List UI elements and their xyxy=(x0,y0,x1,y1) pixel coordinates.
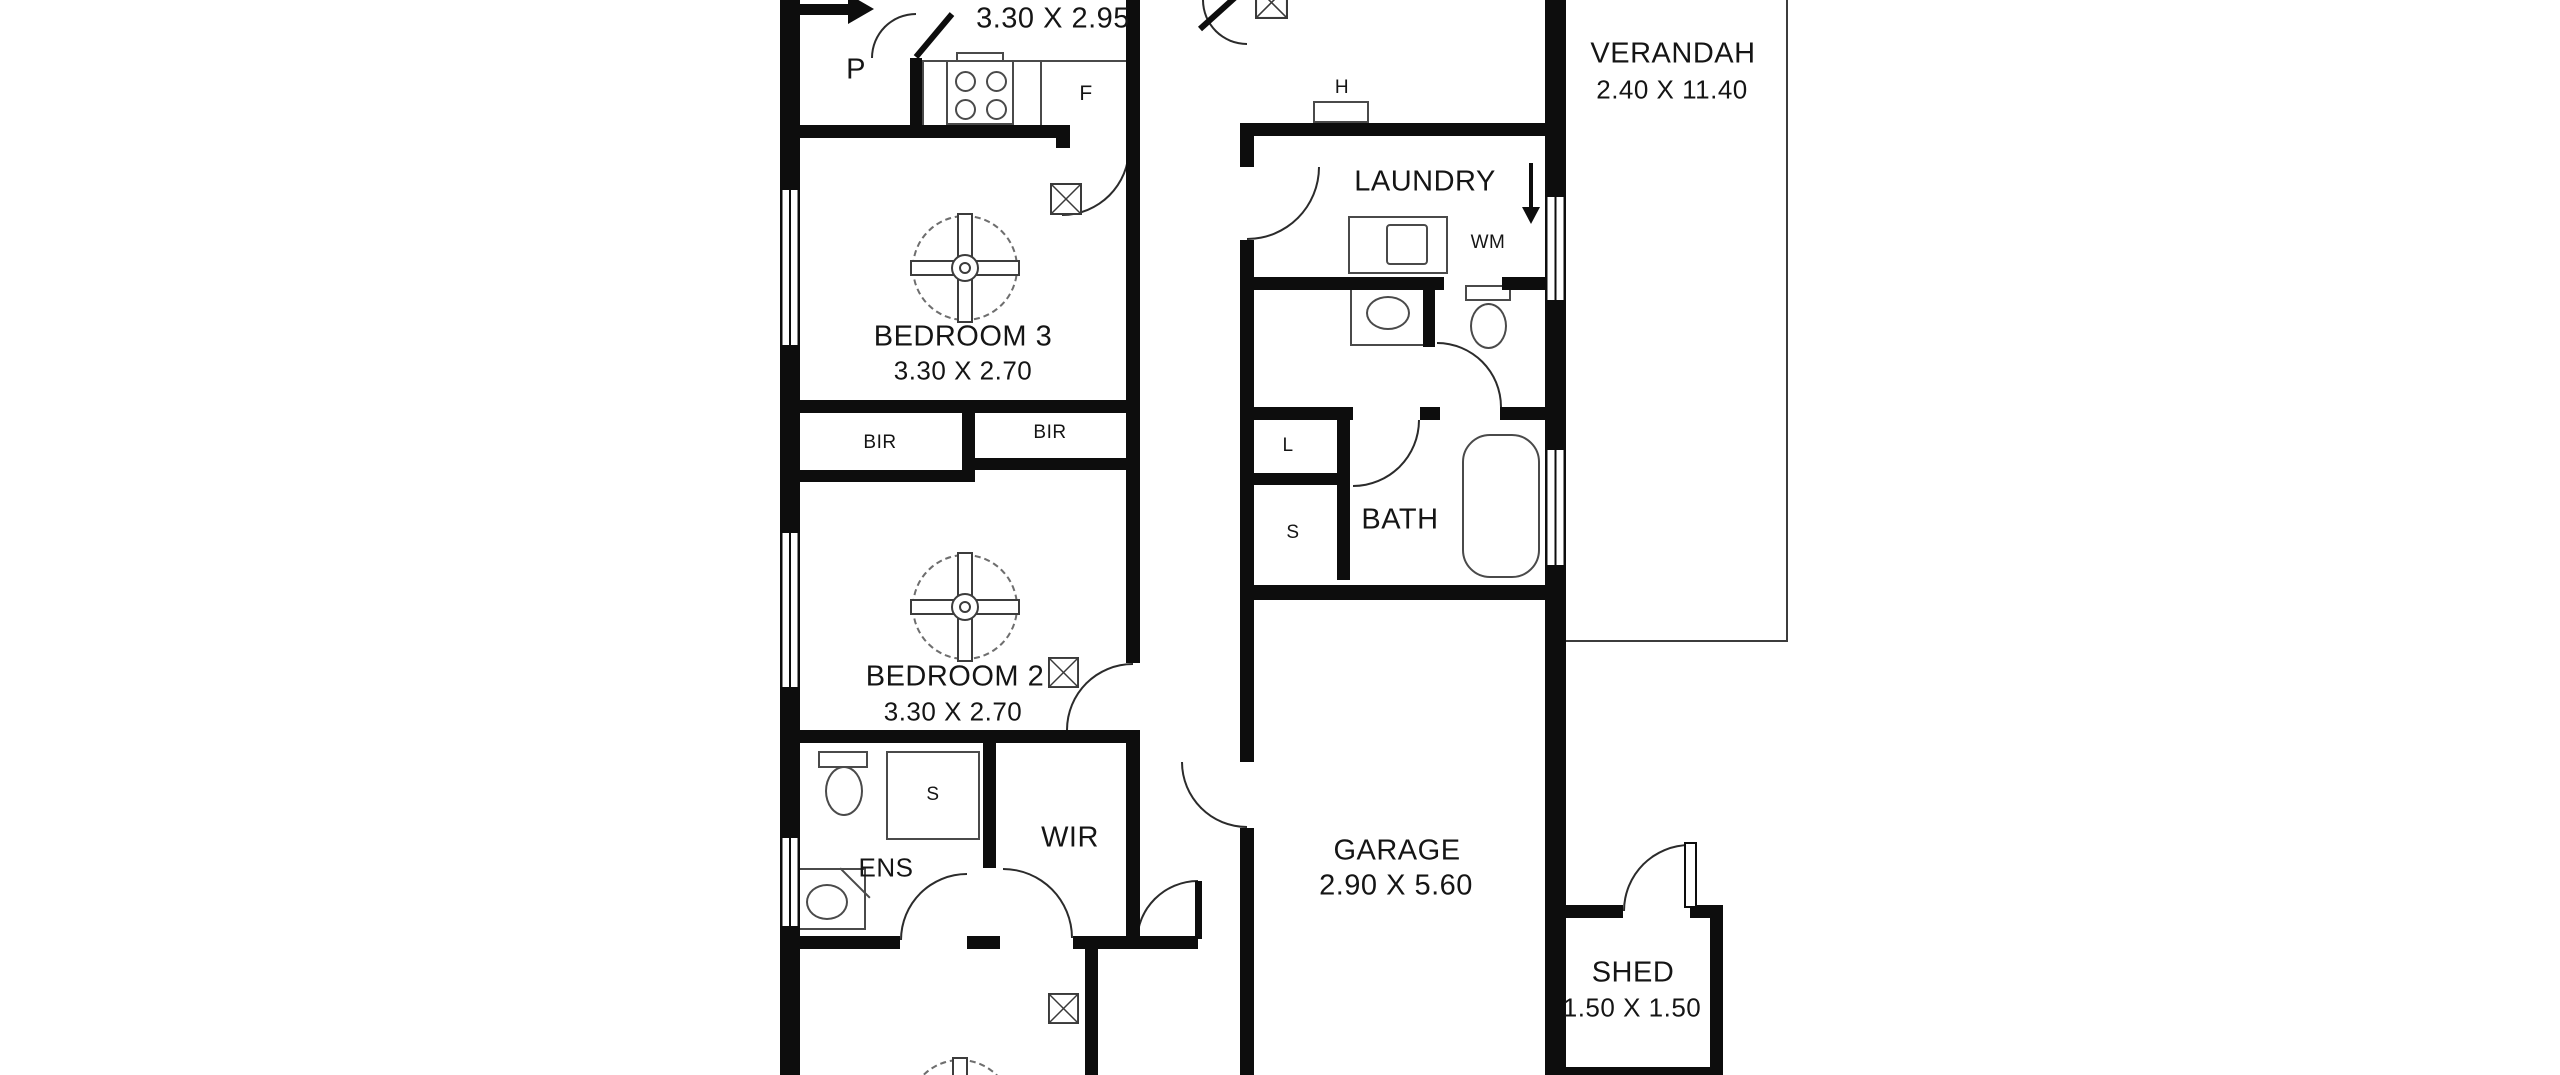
wall xyxy=(1254,473,1337,485)
bath-door-arc xyxy=(1353,420,1420,487)
verandah-dims: 2.40 X 11.40 xyxy=(1596,75,1748,106)
garage-label: GARAGE xyxy=(1333,835,1460,868)
ceiling-fan-icon xyxy=(912,554,1018,660)
master-door-arc xyxy=(1136,880,1198,942)
wall xyxy=(1126,0,1140,663)
hot-water-label: H xyxy=(1335,77,1349,99)
bir-right-label: BIR xyxy=(1033,422,1066,444)
bedroom3-label: BEDROOM 3 xyxy=(874,321,1053,354)
entry-arrow-icon xyxy=(848,0,874,24)
fan-blade xyxy=(952,1057,968,1075)
wall xyxy=(1240,585,1566,600)
shed-door-leaf xyxy=(1684,842,1697,908)
wall xyxy=(1420,407,1440,420)
wall xyxy=(1545,1067,1723,1075)
linen-label: L xyxy=(1282,435,1293,457)
wall xyxy=(780,345,800,533)
fan-hub xyxy=(959,262,971,274)
ceiling-symbol-icon xyxy=(1255,0,1288,19)
garage-dims: 2.90 X 5.60 xyxy=(1319,870,1473,903)
bir-left-label: BIR xyxy=(863,432,896,454)
ens-shower-label: S xyxy=(926,784,939,806)
ceiling-symbol-icon xyxy=(1050,183,1082,215)
laundry-door-arc xyxy=(1247,167,1320,240)
toilet-bowl-icon xyxy=(825,766,863,816)
wall xyxy=(1254,277,1444,290)
wc-basin-icon xyxy=(1366,296,1410,330)
fridge-divider-line xyxy=(1040,60,1042,125)
burner-icon xyxy=(955,71,976,92)
wall xyxy=(1085,949,1098,1075)
wc-door-arc xyxy=(1437,342,1502,407)
bedroom3-window xyxy=(780,190,800,345)
wall xyxy=(1545,0,1566,197)
wall xyxy=(983,743,996,868)
pantry-door-arc xyxy=(871,13,916,58)
pantry-divider-wall xyxy=(910,58,922,125)
toilet-bowl-icon xyxy=(1470,303,1507,349)
wall xyxy=(780,936,900,949)
garage-door-arc xyxy=(1181,762,1247,828)
wall xyxy=(780,470,975,482)
master-door-leaf xyxy=(1195,881,1202,939)
wir-label: WIR xyxy=(1041,822,1099,855)
bathtub-icon xyxy=(1462,434,1540,578)
cooktop-panel xyxy=(956,52,1004,62)
wir-door-arc xyxy=(1003,868,1073,938)
wall xyxy=(1140,936,1198,949)
wall xyxy=(780,0,800,190)
wall xyxy=(780,125,1062,138)
bedroom2-label: BEDROOM 2 xyxy=(866,661,1045,694)
wall xyxy=(1126,730,1140,948)
wall xyxy=(1545,905,1623,918)
burner-icon xyxy=(955,99,976,120)
wall xyxy=(1240,123,1566,136)
verandah-label: VERANDAH xyxy=(1590,38,1755,71)
wall xyxy=(1500,407,1545,420)
fan-hub xyxy=(959,601,971,613)
ceiling-fan-icon xyxy=(912,215,1018,321)
hot-water-icon xyxy=(1313,101,1369,123)
entry-arrow-shaft xyxy=(798,4,848,15)
laundry-exit-arrow-icon xyxy=(1522,207,1540,224)
kitchen-dims: 3.30 X 2.95 xyxy=(976,3,1130,36)
fridge-label: F xyxy=(1079,82,1092,106)
floor-plan: VERANDAH 2.40 X 11.40 P 3.30 X 2.95 F BE… xyxy=(0,0,2560,1075)
laundry-exit-arrow-shaft xyxy=(1529,163,1533,209)
wall xyxy=(1545,300,1566,450)
shed-label: SHED xyxy=(1592,957,1675,990)
burner-icon xyxy=(986,71,1007,92)
pantry-label: P xyxy=(846,54,866,87)
wall xyxy=(1240,123,1254,167)
bath-shower-label: S xyxy=(1286,522,1299,544)
ceiling-fan-icon xyxy=(907,1059,1013,1075)
bath-window xyxy=(1545,450,1566,565)
washing-machine-label: WM xyxy=(1471,232,1506,254)
ensuite-label: ENS xyxy=(859,853,914,884)
ensuite-window xyxy=(780,838,800,926)
bedroom2-window xyxy=(780,533,800,687)
wall xyxy=(1240,240,1254,762)
kitchen-bench-line xyxy=(922,60,924,125)
laundry-label: LAUNDRY xyxy=(1354,166,1496,199)
pantry-door-leaf xyxy=(914,12,955,59)
laundry-tub-basin xyxy=(1386,224,1428,265)
wall xyxy=(780,400,1140,413)
wall xyxy=(967,936,1000,949)
bath-label: BATH xyxy=(1361,504,1438,537)
wall xyxy=(1240,828,1254,1075)
ceiling-symbol-icon xyxy=(1048,657,1079,688)
wall xyxy=(1073,936,1140,949)
basin-icon xyxy=(806,884,848,920)
wall xyxy=(780,687,800,838)
wall xyxy=(962,458,1140,470)
wall xyxy=(1710,905,1723,1075)
wall xyxy=(1337,407,1350,580)
wall xyxy=(780,730,1140,743)
shed-door-arc xyxy=(1623,844,1690,911)
bedroom3-door-leaf xyxy=(1056,125,1070,148)
laundry-door-glazing xyxy=(1545,197,1566,300)
wall xyxy=(1502,277,1545,290)
bedroom3-dims: 3.30 X 2.70 xyxy=(894,356,1033,387)
burner-icon xyxy=(986,99,1007,120)
bedroom2-dims: 3.30 X 2.70 xyxy=(884,697,1023,728)
wall xyxy=(1423,277,1435,347)
ceiling-symbol-icon xyxy=(1048,993,1079,1024)
shed-dims: 1.50 X 1.50 xyxy=(1563,993,1702,1024)
